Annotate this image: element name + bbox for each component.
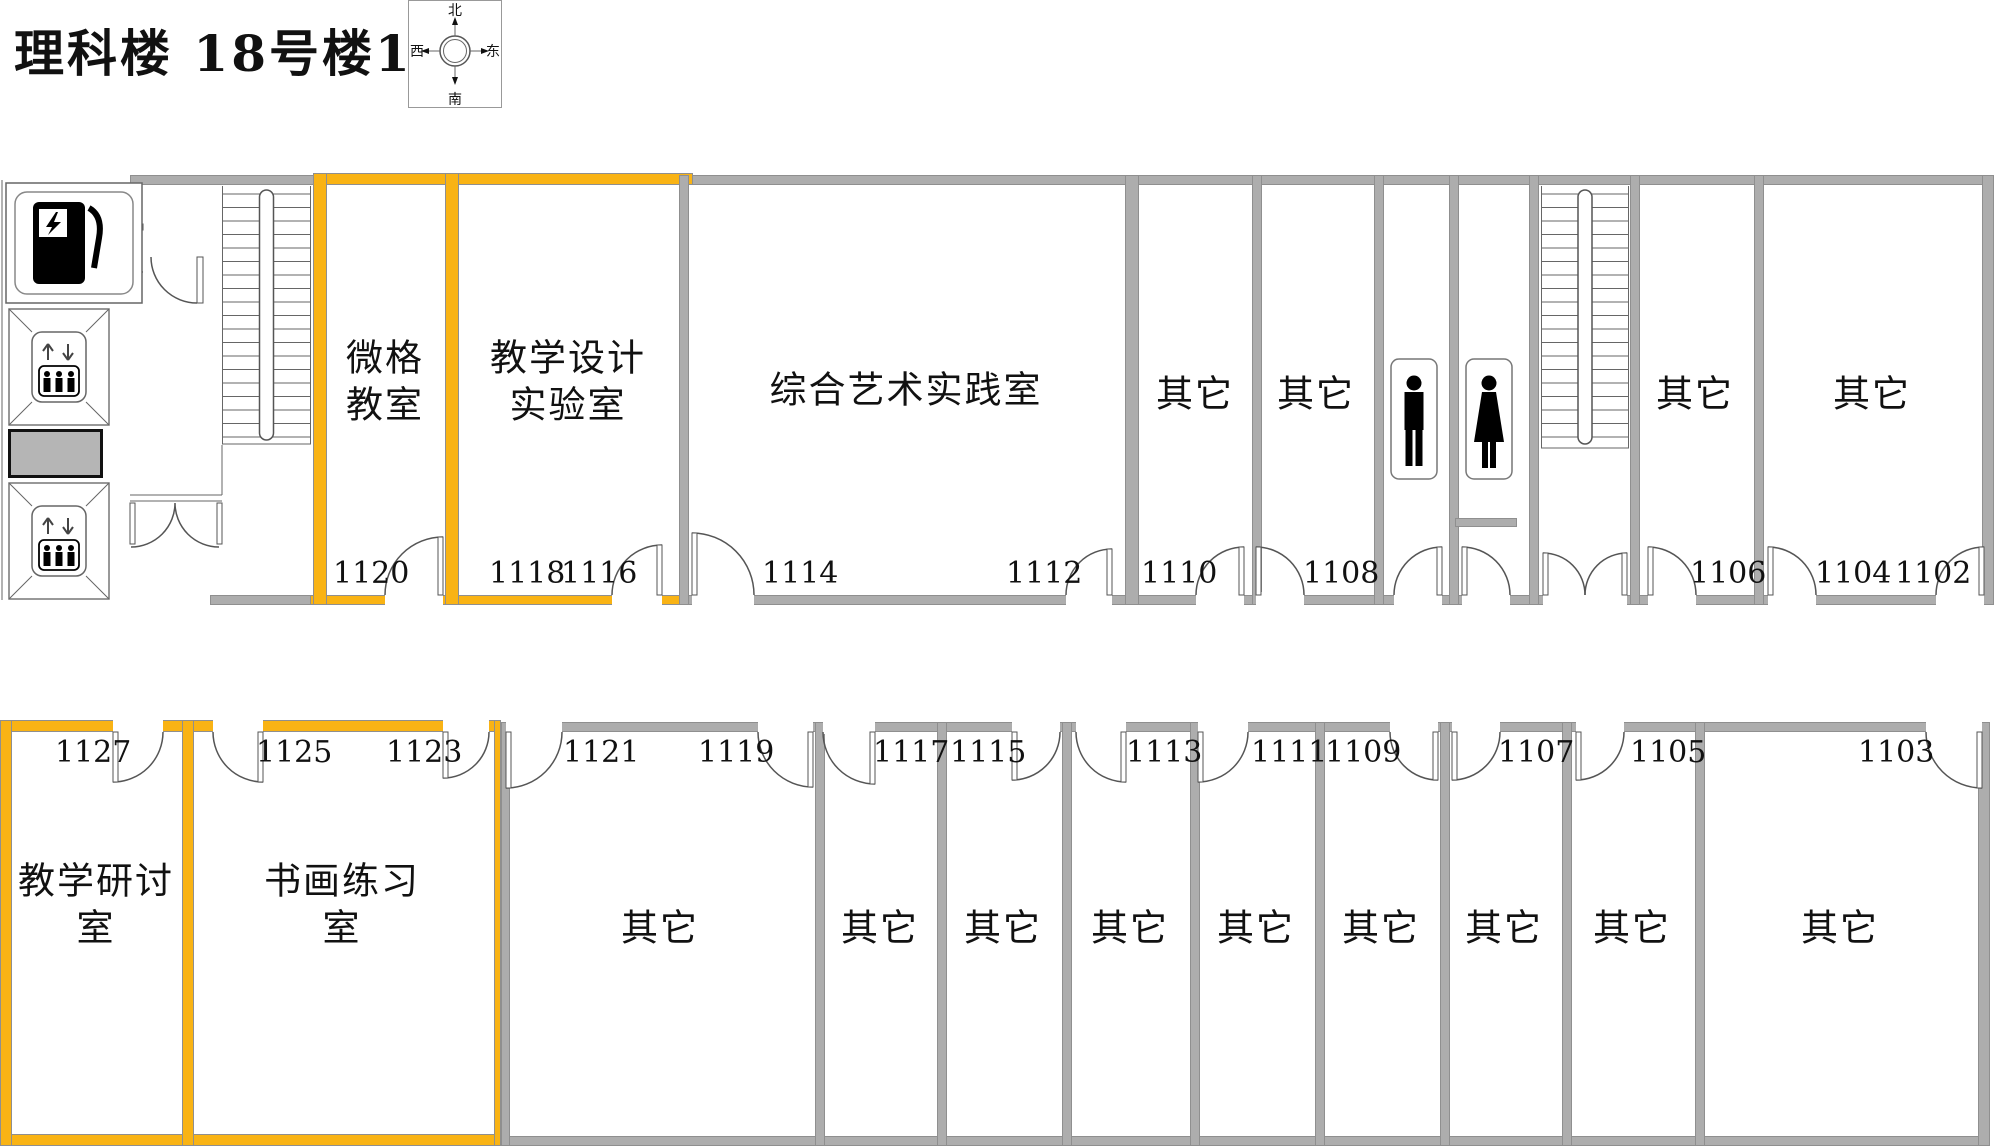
room-number: 1107 [1498, 735, 1574, 770]
wall [1449, 175, 1459, 605]
wall [1982, 175, 1994, 605]
room-number: 1102 [1895, 556, 1971, 591]
door-opening [1394, 592, 1442, 607]
door-leaf [1543, 553, 1548, 595]
door-swing-arc [1585, 553, 1627, 595]
room-number: 1106 [1690, 556, 1766, 591]
stair-rail [1578, 190, 1592, 444]
room-number: 1113 [1126, 735, 1202, 770]
wall-highlighted [0, 720, 12, 1146]
room-label: 教学设计实验室 [490, 335, 646, 430]
wall [1562, 722, 1572, 1146]
room-label-line: 室 [18, 905, 174, 952]
wall [679, 175, 689, 605]
compass-west-label: 西 [410, 44, 424, 60]
room-number: 1121 [563, 735, 639, 770]
room-number: 1105 [1630, 735, 1706, 770]
wall [1374, 175, 1384, 605]
room-label-line: 教学设计 [490, 335, 646, 382]
room-label-line: 其它 [1593, 904, 1671, 951]
wall [501, 722, 510, 1146]
room-label-line: 其它 [1656, 370, 1734, 417]
room-label: 其它 [1217, 904, 1295, 951]
door-swing-arc [1543, 553, 1585, 595]
door-opening [1543, 592, 1627, 607]
elevator-icon [8, 308, 110, 426]
door-swing-arc [1394, 547, 1442, 595]
room-number: 1119 [698, 735, 774, 770]
room-label-line: 其它 [1342, 904, 1420, 951]
wall [937, 722, 947, 1146]
wall [815, 722, 825, 1146]
room-number: 1117 [873, 735, 949, 770]
wall [1529, 175, 1539, 605]
room-label-line: 其它 [841, 904, 919, 951]
room-label-line: 教学研讨 [18, 858, 174, 905]
room-label-line: 其它 [1801, 904, 1879, 951]
room-number: 1114 [762, 556, 838, 591]
wall [1252, 175, 1262, 605]
wall-highlighted [315, 173, 693, 185]
female-restroom-icon [1465, 358, 1513, 480]
compass-north-label: 北 [448, 3, 462, 19]
room-label-line: 微格 [346, 335, 424, 382]
room-number: 1116 [561, 556, 637, 591]
wall [1125, 175, 1139, 605]
wall-highlighted [182, 720, 194, 1146]
floor-plan: 理科楼 18号楼11层 北 东 南 西 [0, 0, 2000, 1146]
wall [1630, 175, 1640, 605]
room-label: 其它 [1156, 370, 1234, 417]
room-number: 1115 [950, 735, 1026, 770]
staircase [1541, 186, 1629, 448]
wall-highlighted [494, 720, 501, 1146]
room-label: 其它 [1342, 904, 1420, 951]
wall [1978, 722, 1990, 1146]
room-label-line: 综合艺术实践室 [770, 366, 1043, 413]
room-number: 1109 [1325, 735, 1401, 770]
door-opening [1462, 592, 1510, 607]
room-label-line: 其它 [1217, 904, 1295, 951]
room-number: 1103 [1858, 735, 1934, 770]
room-label-line: 其它 [1156, 370, 1234, 417]
compass-east-label: 东 [486, 44, 500, 60]
compass-south-label: 南 [448, 92, 462, 108]
room-label: 其它 [621, 904, 699, 951]
room-label: 其它 [964, 904, 1042, 951]
room-label-line: 其它 [1091, 904, 1169, 951]
room-number: 1110 [1141, 556, 1217, 591]
door-leaf [1462, 547, 1467, 595]
compass-rose: 北 东 南 西 [408, 0, 502, 108]
door-leaf [1622, 553, 1627, 595]
room-number: 1108 [1303, 556, 1379, 591]
room-label: 其它 [1465, 904, 1543, 951]
room-label: 其它 [841, 904, 919, 951]
room-label: 其它 [1277, 370, 1355, 417]
wall [1190, 722, 1200, 1146]
room-label: 微格教室 [346, 335, 424, 430]
door-leaf [1437, 547, 1442, 595]
room-label: 其它 [1833, 370, 1911, 417]
room-label: 其它 [1801, 904, 1879, 951]
room-number: 1111 [1251, 735, 1327, 770]
elevator-icon [8, 482, 110, 600]
male-restroom-icon [1390, 358, 1438, 480]
wall [1315, 722, 1325, 1146]
wall [1754, 175, 1764, 605]
room-label: 教学研讨室 [18, 858, 174, 953]
room-label: 书画练习室 [264, 858, 420, 953]
wall [1440, 722, 1450, 1146]
service-shaft [8, 429, 103, 478]
room-label-line: 其它 [621, 904, 699, 951]
room-label-line: 教室 [346, 382, 424, 429]
room-label-line: 实验室 [490, 382, 646, 429]
room-number: 1112 [1006, 556, 1082, 591]
wall [1062, 722, 1072, 1146]
room-number: 1127 [55, 735, 131, 770]
room-label-line: 其它 [1833, 370, 1911, 417]
wall-highlighted [313, 173, 327, 605]
room-number: 1120 [333, 556, 409, 591]
room-label-line: 室 [264, 905, 420, 952]
staircase [222, 186, 311, 444]
electrical-room-icon [5, 182, 143, 304]
room-label-line: 其它 [1465, 904, 1543, 951]
wall-highlighted [445, 173, 459, 605]
room-label-line: 书画练习 [264, 858, 420, 905]
door-swing-arc [1462, 547, 1510, 595]
room-number: 1123 [386, 735, 462, 770]
room-label: 综合艺术实践室 [770, 366, 1043, 413]
room-label-line: 其它 [964, 904, 1042, 951]
room-label: 其它 [1593, 904, 1671, 951]
room-label-line: 其它 [1277, 370, 1355, 417]
room-number: 1125 [256, 735, 332, 770]
stair-rail [260, 190, 274, 440]
room-number: 1118 [489, 556, 565, 591]
room-number: 1104 [1815, 556, 1891, 591]
room-label: 其它 [1656, 370, 1734, 417]
room-label: 其它 [1091, 904, 1169, 951]
wall [1455, 518, 1517, 527]
wall [1695, 722, 1705, 1146]
